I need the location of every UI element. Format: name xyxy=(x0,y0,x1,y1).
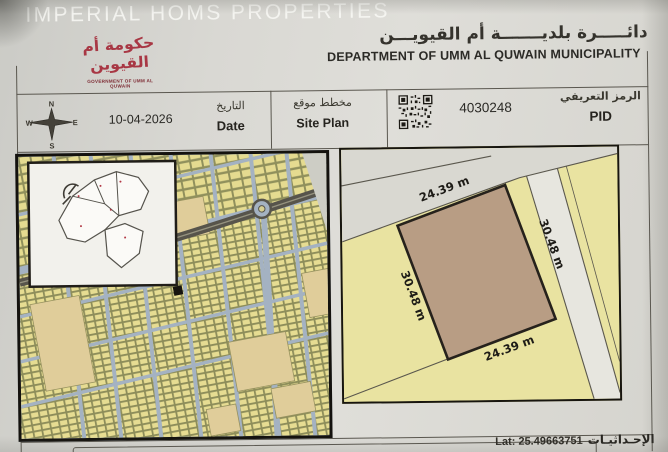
date-label: Date xyxy=(199,118,263,134)
compass-s: S xyxy=(49,141,54,150)
site-plan-drawing: 24.39 m 24.39 m 30.48 m 30.48 m xyxy=(341,147,620,402)
document-photo: IMPERIAL HOMS PROPERTIES حكومة أم القيوي… xyxy=(0,0,668,452)
frame-right-border xyxy=(647,51,653,451)
location-map xyxy=(18,153,329,439)
watermark: IMPERIAL HOMS PROPERTIES xyxy=(25,0,390,28)
compass-n: N xyxy=(49,99,55,108)
compass-rose-icon: N S W E xyxy=(24,96,79,151)
pid-value: 4030248 xyxy=(440,100,530,116)
municipality-title-english: DEPARTMENT OF UMM AL QUWAIN MUNICIPALITY xyxy=(320,46,648,64)
location-map-panel xyxy=(15,150,332,442)
doc-type-label-arabic: مخطط موقع xyxy=(286,96,358,110)
doc-type-label: Site Plan xyxy=(287,116,359,131)
coordinates-label: الإحـداثيـات xyxy=(589,432,655,447)
qr-code xyxy=(398,95,432,129)
municipality-title-arabic: دائـــــرة بلديـــــــة أم القيويـــن xyxy=(316,23,648,46)
site-plan-panel: 24.39 m 24.39 m 30.48 m 30.48 m xyxy=(339,145,622,404)
date-value: 10-04-2026 xyxy=(91,112,191,127)
compass-w: W xyxy=(26,119,34,128)
government-emblem-logo: حكومة أم القيوين xyxy=(81,33,157,75)
cell-divider-1 xyxy=(270,91,272,149)
compass-e: E xyxy=(73,118,78,127)
pid-label: PID xyxy=(555,108,647,124)
coordinates-value: Lat: 25.49663751 xyxy=(423,435,583,449)
pid-label-arabic: الرمز التعريفي xyxy=(554,89,646,103)
plot-location-marker xyxy=(173,285,184,296)
cell-divider-2 xyxy=(386,89,388,147)
date-label-arabic: التاريخ xyxy=(198,99,262,113)
map-inset-overview xyxy=(28,161,177,287)
emblem-caption: GOVERNMENT OF UMM AL QUWAIN xyxy=(78,78,162,89)
